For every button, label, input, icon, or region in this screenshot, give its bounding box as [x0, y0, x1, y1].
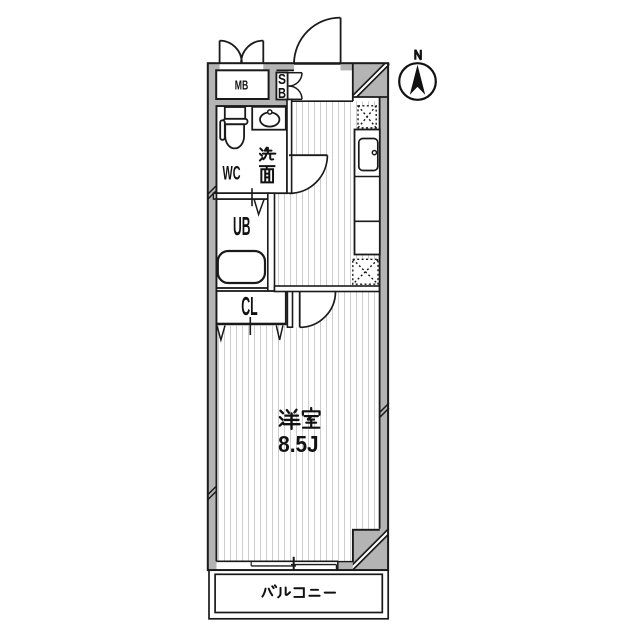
svg-text:UB: UB: [233, 211, 251, 241]
svg-text:8.5J: 8.5J: [278, 431, 319, 457]
svg-text:MB: MB: [235, 77, 249, 92]
svg-text:WC: WC: [223, 163, 241, 185]
svg-text:CL: CL: [241, 291, 258, 321]
svg-text:B: B: [278, 85, 286, 102]
